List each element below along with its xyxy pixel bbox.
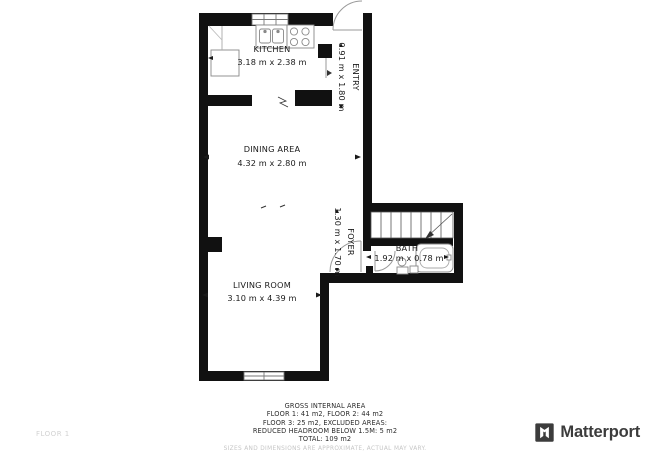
threshold-mark bbox=[280, 205, 285, 207]
sink-faucet bbox=[264, 30, 266, 32]
wall bbox=[363, 212, 371, 251]
kitchen-opening-mark bbox=[278, 97, 288, 107]
room-label-kitchen: KITCHEN bbox=[254, 44, 291, 54]
dim-arrow-left bbox=[366, 255, 371, 259]
room-dims-bath: 1.92 m x 0.78 m bbox=[374, 253, 443, 263]
stove-burner bbox=[302, 28, 309, 35]
room-dims-foyer: 1.30 m x 1.70 m bbox=[333, 207, 343, 276]
room-dims-dining: 4.32 m x 2.80 m bbox=[237, 158, 306, 168]
stove-burner bbox=[290, 38, 297, 45]
stove-burner bbox=[290, 28, 297, 35]
wall bbox=[207, 237, 222, 252]
counter-edge bbox=[209, 26, 222, 40]
room-label-entry: ENTRY bbox=[351, 63, 361, 91]
windows bbox=[244, 14, 288, 380]
room-label-living: LIVING ROOM bbox=[233, 280, 291, 290]
area-summary-line: FLOOR 1: 41 m2, FLOOR 2: 44 m2 bbox=[0, 410, 650, 418]
room-label-dining: DINING AREA bbox=[244, 144, 301, 154]
wall bbox=[366, 266, 373, 276]
room-labels: KITCHEN 3.18 m x 2.38 m ENTRY 0.91 m x 1… bbox=[227, 42, 443, 303]
wall bbox=[318, 44, 332, 58]
room-dims-entry: 0.91 m x 1.80 m bbox=[337, 42, 347, 111]
wall bbox=[363, 203, 463, 212]
room-label-bath: BATH bbox=[396, 243, 419, 253]
sink-faucet bbox=[277, 30, 279, 32]
bath-sink bbox=[410, 266, 418, 273]
threshold-mark bbox=[261, 206, 266, 208]
entry-door-arc bbox=[333, 1, 362, 30]
matterport-logo-text: Matterport bbox=[560, 423, 640, 442]
kitchen-door-arrow bbox=[327, 70, 332, 76]
toilet-tank bbox=[397, 267, 408, 274]
fridge bbox=[211, 50, 239, 76]
wall bbox=[363, 13, 372, 212]
floor-label: FLOOR 1 bbox=[36, 430, 70, 438]
dim-arrow-right bbox=[355, 155, 361, 160]
floor-plan-page: KITCHEN 3.18 m x 2.38 m ENTRY 0.91 m x 1… bbox=[0, 0, 650, 450]
wall bbox=[454, 203, 463, 283]
room-dims-living: 3.10 m x 4.39 m bbox=[227, 293, 296, 303]
matterport-logo: Matterport bbox=[534, 422, 640, 443]
wall bbox=[207, 95, 252, 106]
floor-plan: KITCHEN 3.18 m x 2.38 m ENTRY 0.91 m x 1… bbox=[0, 0, 650, 450]
matterport-logo-icon bbox=[534, 422, 555, 443]
wall bbox=[320, 273, 329, 381]
wall bbox=[295, 90, 332, 106]
area-summary-title: GROSS INTERNAL AREA bbox=[0, 402, 650, 410]
stove-burner bbox=[302, 38, 309, 45]
room-dims-kitchen: 3.18 m x 2.38 m bbox=[237, 57, 306, 67]
stairs bbox=[371, 212, 453, 239]
dim-arrow-left bbox=[208, 56, 213, 60]
wall bbox=[199, 13, 208, 381]
room-label-foyer: FOYER bbox=[346, 228, 356, 256]
